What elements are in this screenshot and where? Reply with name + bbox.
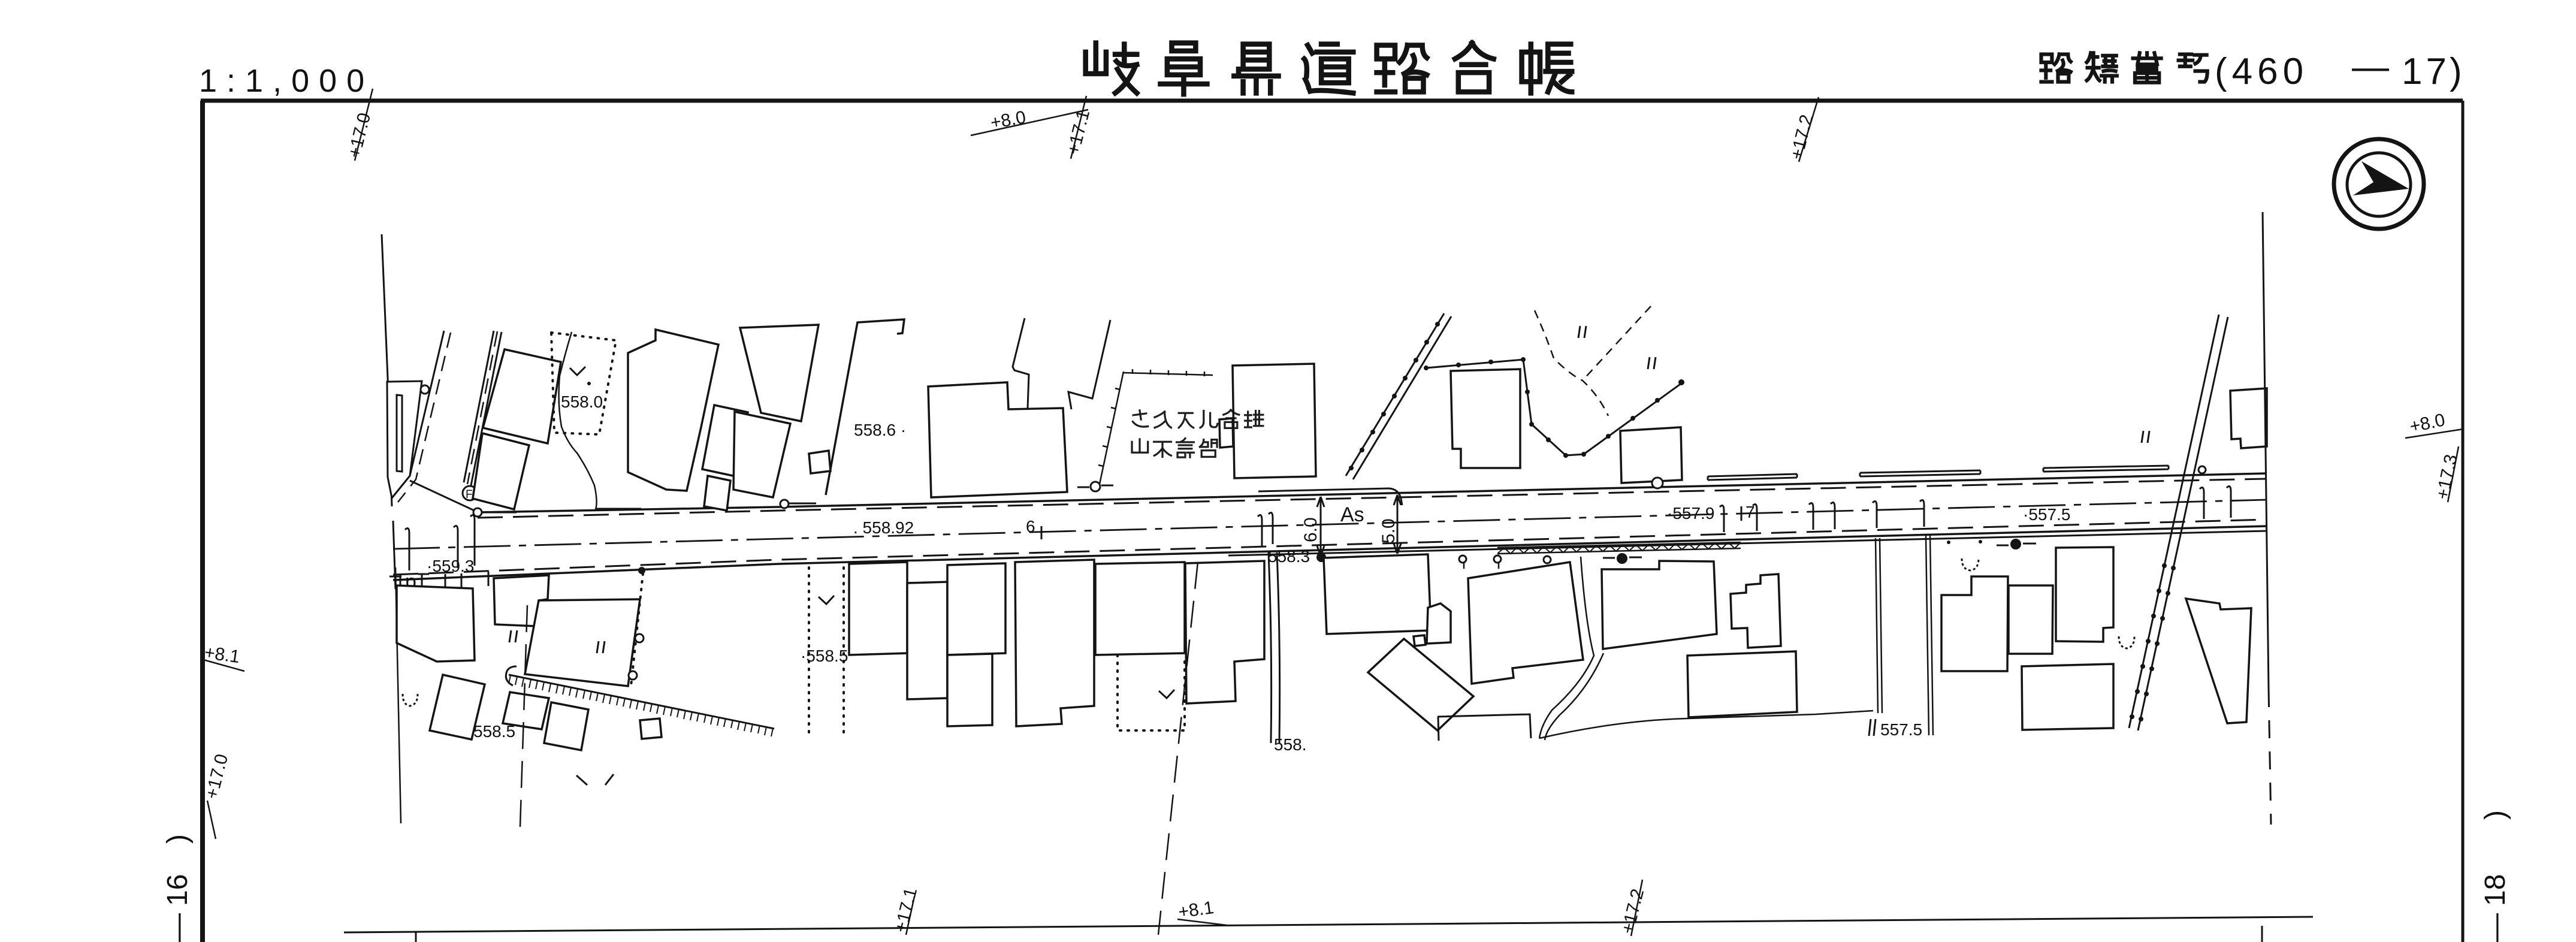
svg-text:558.3: 558.3 — [1268, 547, 1310, 566]
svg-text:18: 18 — [2480, 874, 2511, 906]
svg-text:·559.3: ·559.3 — [427, 557, 474, 575]
svg-text:): ) — [2450, 51, 2462, 92]
svg-text:·558.5: ·558.5 — [801, 647, 848, 665]
svg-text:6.0: 6.0 — [1301, 517, 1321, 542]
svg-text:As: As — [1340, 503, 1364, 526]
svg-text:): ) — [162, 834, 194, 844]
svg-text:17: 17 — [2402, 51, 2450, 92]
svg-text:6: 6 — [1026, 517, 1035, 536]
svg-text:—: — — [162, 913, 194, 942]
svg-text:16: 16 — [162, 874, 194, 906]
svg-text:—: — — [2480, 913, 2511, 942]
svg-text:F: F — [466, 488, 473, 501]
svg-text:—: — — [2352, 46, 2389, 87]
svg-text:): ) — [2480, 810, 2511, 820]
svg-text:558.5: 558.5 — [473, 722, 515, 741]
svg-text:558.: 558. — [1274, 735, 1307, 754]
svg-text:. 558.92: . 558.92 — [853, 518, 914, 537]
svg-text:1:1,000: 1:1,000 — [199, 63, 374, 99]
svg-text:5.0: 5.0 — [1379, 518, 1399, 544]
svg-text:7: 7 — [1745, 503, 1755, 521]
svg-text:558.6 ·: 558.6 · — [854, 421, 906, 439]
svg-text:·557.5: ·557.5 — [2023, 505, 2070, 524]
svg-text:558.0: 558.0 — [561, 393, 603, 411]
svg-text:·557.9: ·557.9 — [1667, 504, 1714, 523]
svg-text:557.5: 557.5 — [1880, 720, 1922, 739]
svg-text:(460: (460 — [2215, 51, 2308, 92]
